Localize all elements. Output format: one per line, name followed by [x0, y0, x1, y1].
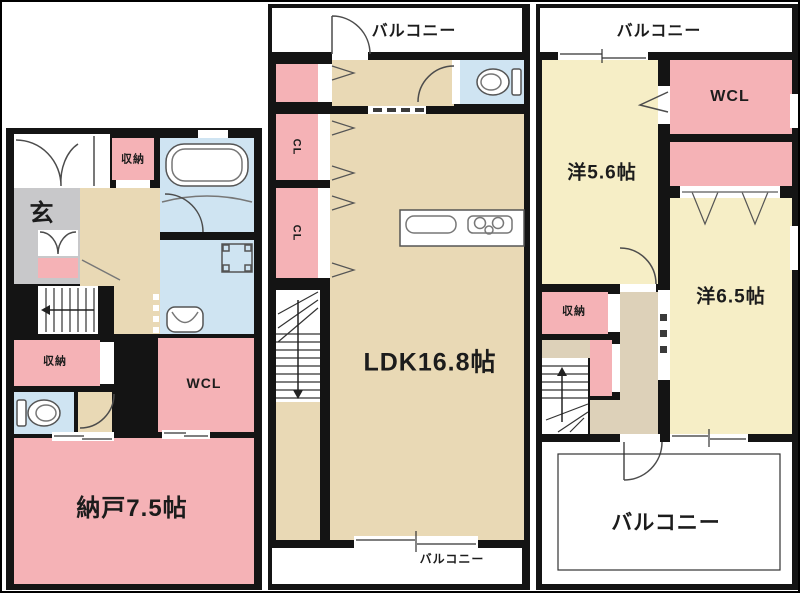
label-cl-lower: CL [291, 225, 302, 242]
window-gap-western-6-5 [790, 226, 798, 270]
room-toilet-1f [14, 392, 74, 434]
label-balcony-3f-bottom: バルコニー [611, 513, 721, 534]
label-storage-room: 納戸7.5帖 [76, 497, 187, 521]
room-washroom [160, 240, 254, 334]
room-bathroom [160, 138, 254, 232]
ldk-opening-gap [368, 106, 426, 114]
hall-1f-small [78, 392, 112, 434]
stairs-3f-area [542, 358, 588, 434]
closet-3f-fold-door [680, 186, 780, 198]
label-storage-1f-mid: 収納 [43, 357, 67, 368]
closet-3f-small-door [612, 344, 620, 392]
label-wcl-1f: WCL [187, 376, 222, 390]
label-wcl-3f: WCL [710, 89, 749, 105]
hall-1f-lower [114, 286, 160, 334]
toilet-2f-door-gap [452, 60, 460, 104]
balcony-2f-bottom [272, 548, 522, 584]
storage-3f-door-gap [608, 294, 620, 332]
entrance-sidelight [80, 134, 110, 188]
ldk-slider-gap [354, 536, 478, 548]
bath-window-gap [198, 130, 228, 138]
room-ldk [330, 114, 524, 540]
label-cl-upper: CL [291, 139, 302, 156]
balcony-3f-door-gap [620, 434, 660, 442]
balcony-door-gap-2f [332, 52, 368, 60]
wcl-3f-door-gap [658, 86, 670, 124]
room-toilet-2f [460, 60, 524, 104]
western-6-5-opening [658, 290, 670, 380]
room-western-6-5 [670, 198, 792, 434]
entrance-doorway [14, 134, 80, 188]
storage-room-slider-gap [52, 432, 114, 441]
closet-2f-a-door [318, 64, 332, 102]
closet-3f-small [590, 340, 612, 396]
stairs-1f-area [38, 286, 98, 334]
label-balcony-2f-bottom: バルコニー [420, 553, 485, 565]
hall-2f-lower-strip [276, 402, 320, 540]
hall-3f [620, 292, 658, 434]
label-western-6-5: 洋6.5帖 [696, 288, 765, 307]
western-6-5-slider-gap [670, 434, 748, 442]
window-gap-3f-top [558, 52, 648, 60]
storage-door-gap [116, 180, 150, 188]
hall-3f-door-gap [620, 284, 656, 292]
closet-3f [670, 142, 792, 186]
shoe-cabinet [38, 258, 78, 278]
hall-2f [332, 60, 454, 106]
hall-3f-corner [590, 400, 620, 434]
label-ldk: LDK16.8帖 [363, 351, 496, 376]
wcl-slider-gap [162, 430, 210, 439]
window-gap-wcl-3f [790, 94, 798, 128]
label-western-5-6: 洋5.6帖 [567, 164, 636, 183]
floor-plan: 収納 玄 収納 WCL 納戸7.5帖 バルコニー CL CL LDK16.8帖 … [0, 0, 800, 593]
storage-mid-door-gap [100, 342, 114, 384]
label-storage-1f-top: 収納 [121, 155, 145, 166]
label-storage-3f: 収納 [562, 307, 586, 318]
label-balcony-3f-top: バルコニー [617, 24, 702, 40]
shoe-closet-door-area [38, 230, 78, 256]
label-balcony-2f-top: バルコニー [372, 24, 457, 40]
label-entrance: 玄 [30, 202, 55, 226]
hall-1f [80, 188, 160, 286]
stairs-2f-area [276, 290, 320, 402]
stairs-3f-landing [542, 340, 590, 358]
closet-2f-a [276, 64, 318, 102]
